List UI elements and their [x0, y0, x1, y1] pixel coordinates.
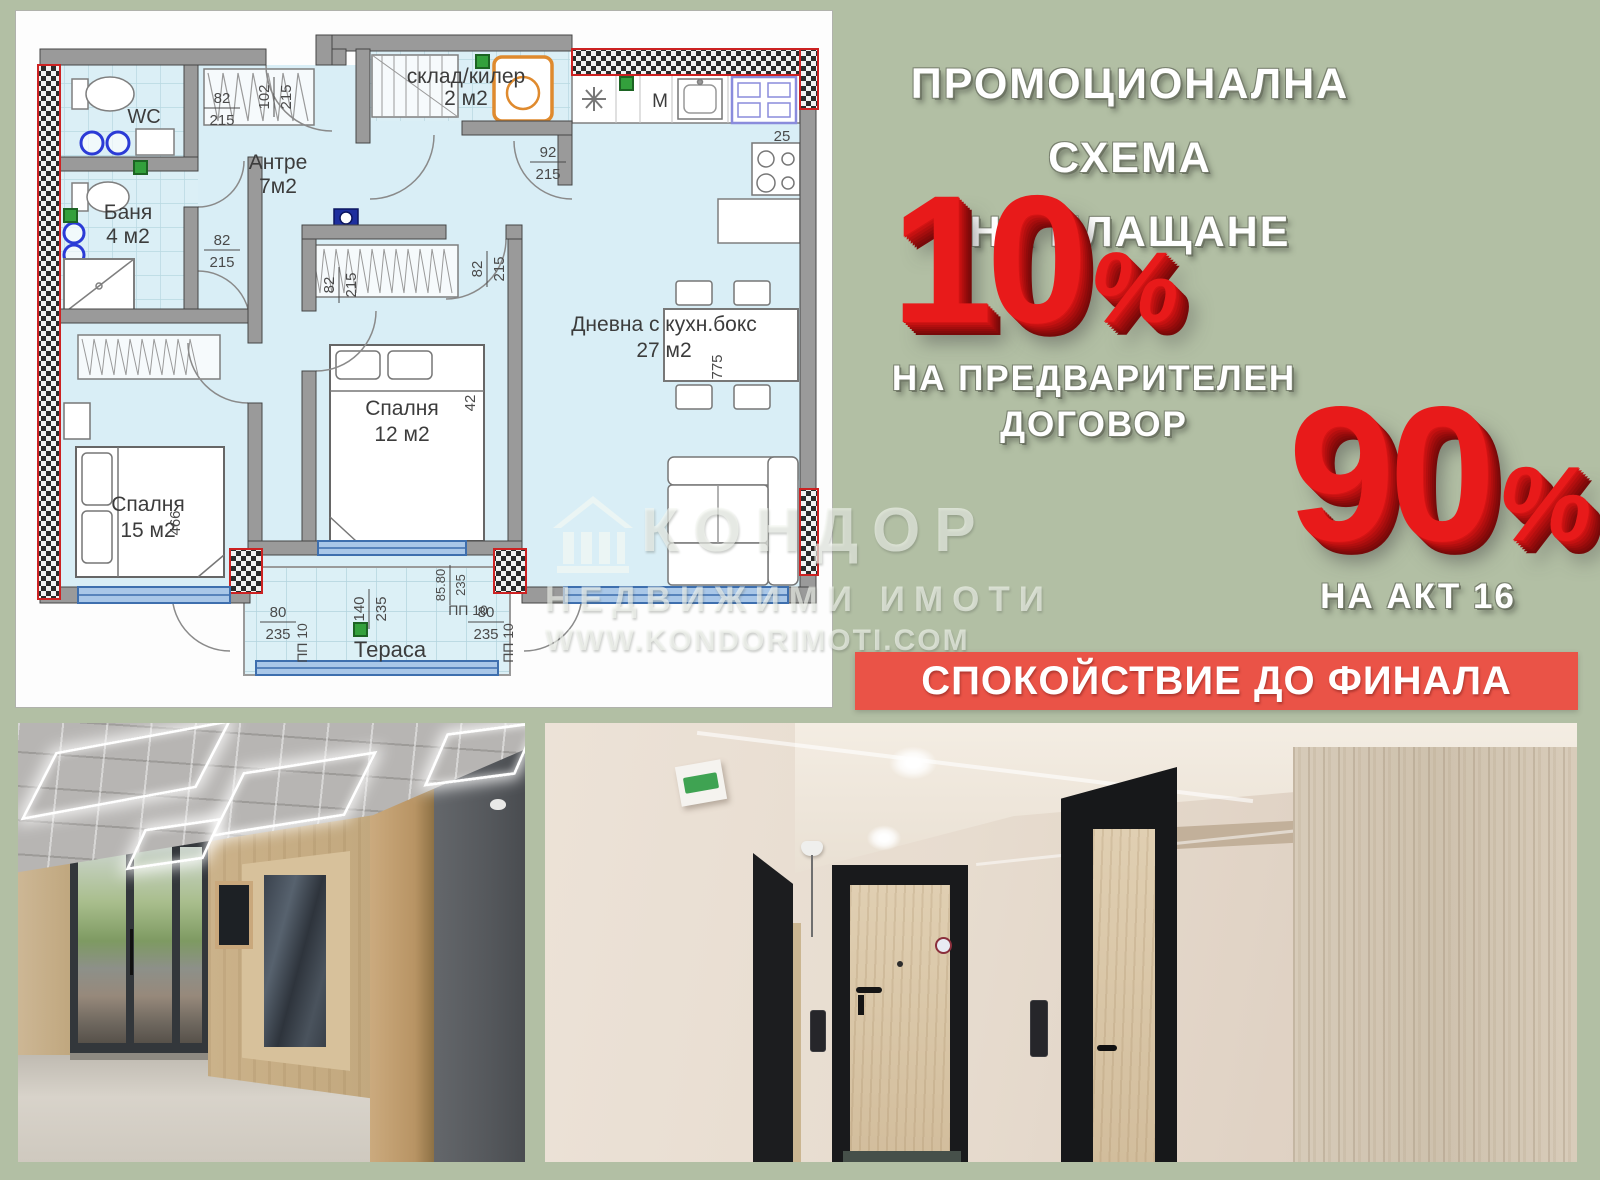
door-badge — [935, 937, 952, 954]
door-handle — [1097, 1045, 1117, 1051]
room-label-terrace: Тераса — [354, 637, 427, 662]
ceiling-spotlight — [881, 741, 945, 785]
discount-90-percent-sign: % — [1498, 445, 1592, 563]
dim-pp10-3: ПП 10 — [500, 623, 516, 663]
doorbell-panel — [1030, 1000, 1048, 1057]
door-handle — [130, 929, 133, 975]
slogan-banner-text: СПОКОЙСТВИЕ ДО ФИНАЛА — [921, 659, 1512, 704]
svg-text:215: 215 — [209, 254, 234, 271]
corridor-floor — [843, 1151, 961, 1162]
discount-10-label-line2: ДОГОВОР — [844, 402, 1344, 448]
room-label-wc: WC — [127, 106, 160, 128]
lobby-dark-wall — [434, 731, 525, 1162]
room-label-hall: Антре — [249, 151, 308, 174]
room-area-hall: 7м2 — [259, 175, 297, 198]
dim-pp10-2: ПП 10 — [448, 602, 488, 618]
door-handle — [856, 987, 882, 993]
mirror — [264, 875, 326, 1047]
svg-text:102: 102 — [256, 84, 273, 109]
svg-text:82: 82 — [214, 90, 231, 107]
discount-90-percent: 90% — [1280, 392, 1600, 555]
floor-plan: WC Баня 4 м2 Антре 7м2 склад/килер 2 м2 … — [15, 10, 833, 708]
discount-10-percent: 10% — [865, 182, 1205, 337]
svg-text:235: 235 — [473, 626, 498, 643]
room-label-living: Дневна с кухн.бокс — [571, 313, 757, 336]
discount-90-label: НА АКТ 16 — [1268, 574, 1568, 620]
real-estate-flyer: WC Баня 4 м2 Антре 7м2 склад/килер 2 м2 … — [0, 0, 1600, 1180]
svg-text:215: 215 — [535, 166, 560, 183]
svg-text:82: 82 — [321, 277, 338, 294]
svg-text:85.80: 85.80 — [433, 569, 448, 602]
dim-pp10-1: ПП 10 — [294, 623, 310, 663]
room-label-bedroom12: Спалня — [365, 397, 438, 420]
security-camera-icon — [490, 799, 506, 810]
wood-grain-panel — [1293, 747, 1577, 1162]
doorbell-panel — [810, 1010, 826, 1052]
kitchen-microwave-mark: M — [652, 91, 668, 112]
slogan-banner: СПОКОЙСТВИЕ ДО ФИНАЛА — [855, 652, 1578, 710]
photo-lobby — [18, 723, 525, 1162]
right-door — [1093, 829, 1155, 1162]
svg-text:235: 235 — [453, 574, 468, 596]
svg-text:215: 215 — [209, 112, 234, 129]
discount-90-value: 90 — [1288, 366, 1490, 581]
svg-text:235: 235 — [373, 596, 390, 621]
photo-corridor — [545, 723, 1577, 1162]
svg-text:235: 235 — [265, 626, 290, 643]
glass-pane — [180, 847, 202, 1043]
left-door-edge — [793, 923, 801, 1162]
svg-text:215: 215 — [491, 256, 508, 281]
discount-10-label: НА ПРЕДВАРИТЕЛЕН ДОГОВОР — [844, 356, 1344, 448]
dim-table-775: 775 — [709, 354, 726, 379]
left-door-frame — [753, 853, 793, 1162]
apartment-door — [850, 885, 950, 1162]
room-label-bath: Баня — [104, 201, 152, 224]
svg-text:215: 215 — [343, 272, 360, 297]
room-area-storage: 2 м2 — [444, 87, 488, 110]
discount-10-value: 10 — [891, 157, 1081, 361]
glass-pane — [78, 847, 126, 1043]
svg-text:82: 82 — [214, 232, 231, 249]
svg-text:80: 80 — [270, 604, 287, 621]
room-area-bedroom12: 12 м2 — [374, 423, 429, 446]
svg-text:92: 92 — [540, 144, 557, 161]
info-screen — [215, 881, 253, 949]
room-area-living: 27 м2 — [636, 339, 691, 362]
exit-sign-glyph — [683, 772, 719, 794]
room-area-bath: 4 м2 — [106, 225, 150, 248]
dim-wall-42: 42 — [462, 395, 479, 412]
lobby-glass-entrance-door — [70, 839, 210, 1053]
ceiling-spotlight — [861, 821, 907, 855]
svg-text:140: 140 — [351, 596, 368, 621]
room-label-storage: склад/килер — [407, 65, 525, 88]
floor-plan-drawing: WC Баня 4 м2 Антре 7м2 склад/килер 2 м2 … — [16, 11, 832, 707]
svg-text:215: 215 — [278, 84, 295, 109]
discount-10-label-line1: НА ПРЕДВАРИТЕЛЕН — [844, 356, 1344, 402]
dim-cabinet-25: 25 — [774, 128, 791, 145]
discount-10-percent-sign: % — [1090, 232, 1179, 344]
dim-bed15-466: 466 — [167, 510, 184, 535]
security-camera-icon — [801, 841, 823, 856]
camera-wire — [811, 855, 813, 937]
peephole — [897, 961, 903, 967]
door-lock-plate — [858, 995, 864, 1015]
svg-text:82: 82 — [469, 261, 486, 278]
door-threshold — [70, 1053, 210, 1060]
exit-sign — [675, 759, 727, 806]
glass-pane — [134, 847, 172, 1043]
